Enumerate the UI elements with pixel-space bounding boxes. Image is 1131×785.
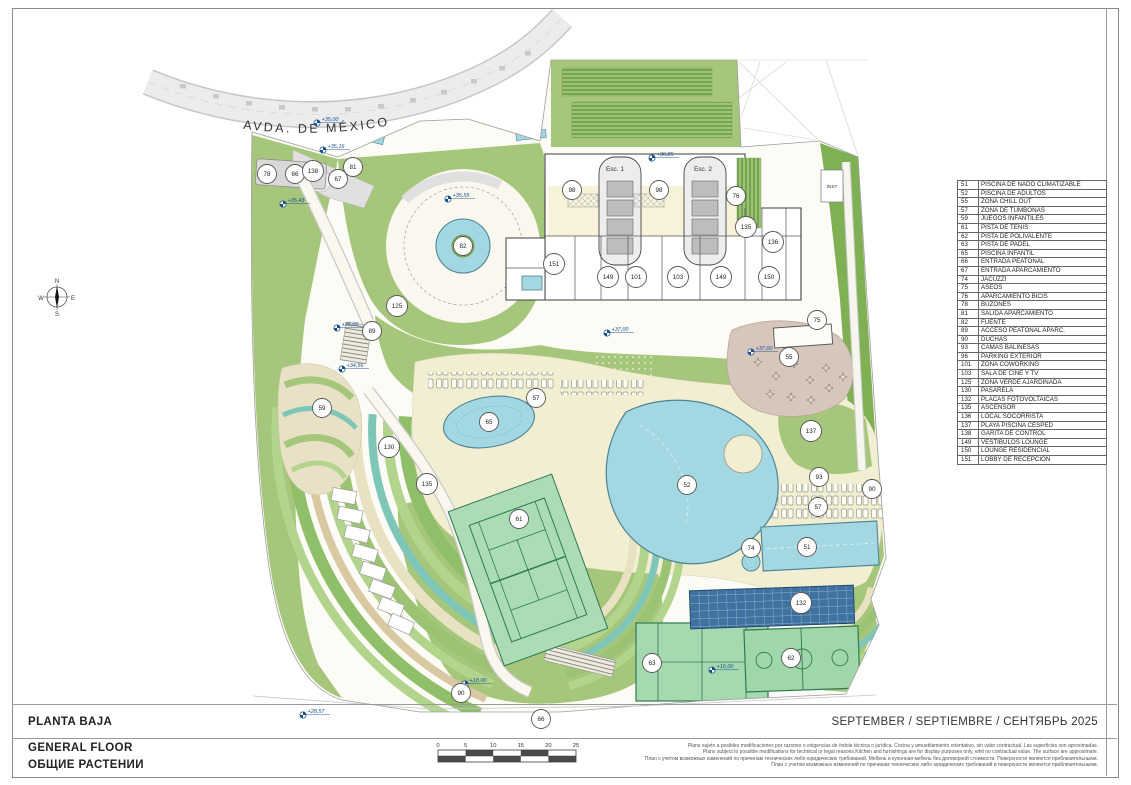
scale-block xyxy=(493,756,521,762)
chair-icon xyxy=(809,383,811,385)
plan-marker-number: 125 xyxy=(392,303,403,310)
chair-icon xyxy=(757,358,759,360)
legend-label: DUCHAS xyxy=(979,335,1107,344)
legend-row: 103SALA DE CINE Y TV xyxy=(958,370,1107,379)
table-icon xyxy=(768,392,772,396)
legend-row: 59JUEGOS INFANTILES xyxy=(958,215,1107,224)
scale-block xyxy=(438,756,466,762)
elevation-value: +16,00 xyxy=(717,664,735,670)
legend: 51PISCINA DE NADO CLIMATIZABLE52PISCINA … xyxy=(957,180,1107,465)
legend-row: 150LOUNGE RESIDENCIAL xyxy=(958,447,1107,456)
chair-icon xyxy=(809,376,811,378)
legend-row: 67ENTRADA APARCAMIENTO xyxy=(958,266,1107,275)
multipurpose-court xyxy=(744,626,860,692)
elevation-icon xyxy=(320,147,326,153)
plan-marker-number: 66 xyxy=(291,171,299,178)
chair-icon xyxy=(797,363,799,365)
plan-label: INST xyxy=(827,184,838,190)
legend-label: PISTA DE TENIS xyxy=(979,223,1107,232)
legend-number: 150 xyxy=(958,447,979,456)
elevation-value: +18,00 xyxy=(470,678,488,684)
chair-icon xyxy=(793,367,795,369)
elevation-value: +35,55 xyxy=(453,193,471,199)
legend-row: 130PASARELA xyxy=(958,387,1107,396)
legend-label: PISCINA INFANTIL xyxy=(979,249,1107,258)
elevation-icon xyxy=(314,120,320,126)
legend-row: 137PLAYA PISCINA CESPED xyxy=(958,421,1107,430)
plan-marker-number: 55 xyxy=(785,354,793,361)
legend-number: 82 xyxy=(958,318,979,327)
chair-icon xyxy=(807,399,809,401)
chair-icon xyxy=(832,387,834,389)
table-icon xyxy=(774,374,778,378)
scale-block xyxy=(548,756,576,762)
plan-marker-number: 98 xyxy=(568,187,576,194)
table-icon xyxy=(789,395,793,399)
legend-row: 151LOBBY DE RECEPCIÓN xyxy=(958,456,1107,465)
legend-label: PISCINA DE ADULTOS xyxy=(979,189,1107,198)
legend-label: BUZONES xyxy=(979,301,1107,310)
lap-pool-51 xyxy=(761,521,879,571)
chair-icon xyxy=(790,400,792,402)
chair-icon xyxy=(814,399,816,401)
chair-icon xyxy=(772,375,774,377)
compass-s: S xyxy=(55,312,59,318)
legend-number: 51 xyxy=(958,181,979,190)
table-icon xyxy=(808,378,812,382)
chair-icon xyxy=(828,384,830,386)
legend-label: ACCESO PEATONAL APARC. xyxy=(979,327,1107,336)
scale-block xyxy=(521,750,549,756)
disclaimer-block: Plano sujeto a posibles modificaciones p… xyxy=(645,743,1098,768)
solar-panels xyxy=(689,585,854,629)
plan-marker-number: 89 xyxy=(368,328,376,335)
legend-row: 125ZONA VERDE AJARDINADA xyxy=(958,378,1107,387)
kerb-mark xyxy=(378,104,384,109)
legend-label: ZONA DE TUMBONAS xyxy=(979,206,1107,215)
legend-number: 78 xyxy=(958,301,979,310)
compass-n: N xyxy=(55,279,59,285)
legend-row: 135ASCENSOR xyxy=(958,404,1107,413)
legend-number: 74 xyxy=(958,275,979,284)
plan-marker-number: 130 xyxy=(384,444,395,451)
pool-island xyxy=(724,435,762,473)
chair-icon xyxy=(839,376,841,378)
scale-tick: 25 xyxy=(573,743,579,749)
legend-label: LOBBY DE RECEPCIÓN xyxy=(979,456,1107,465)
legend-label: GARITA DE CONTROL xyxy=(979,430,1107,439)
plan-marker-number: 132 xyxy=(796,600,807,607)
lobby-water-feature xyxy=(522,276,542,290)
chair-icon xyxy=(810,396,812,398)
legend-number: 137 xyxy=(958,421,979,430)
scale-tick: 20 xyxy=(545,743,551,749)
legend-row: 89ACCESO PEATONAL APARC. xyxy=(958,327,1107,336)
legend-label: ZONA VERDE AJARDINADA xyxy=(979,378,1107,387)
kerb-mark xyxy=(410,98,416,103)
elevation-icon xyxy=(604,330,610,336)
legend-label: LOUNGE RESIDENCIAL xyxy=(979,447,1107,456)
chair-icon xyxy=(790,393,792,395)
legend-number: 151 xyxy=(958,456,979,465)
hedge-rows xyxy=(562,68,712,96)
loungers-row xyxy=(428,372,556,389)
plan-marker-number: 81 xyxy=(349,164,357,171)
chair-icon xyxy=(787,396,789,398)
scale-tick: 5 xyxy=(464,743,467,749)
legend-number: 81 xyxy=(958,309,979,318)
plan-marker-number: 61 xyxy=(515,516,523,523)
elevation-icon xyxy=(445,196,451,202)
kerb-mark xyxy=(180,84,186,89)
legend-number: 65 xyxy=(958,249,979,258)
disclaimer-en: Plans subject to possible modifications … xyxy=(645,749,1098,755)
plan-marker-number: 74 xyxy=(747,545,755,552)
compass-rose: N E S W xyxy=(38,279,75,318)
chair-icon xyxy=(779,375,781,377)
legend-row: 75ASEOS xyxy=(958,284,1107,293)
titleblock-separator-top xyxy=(12,704,1117,705)
elevation-value: +35,00 xyxy=(322,117,340,123)
scale-tick: 10 xyxy=(490,743,496,749)
plan-marker-number: 137 xyxy=(806,428,817,435)
kerb-mark xyxy=(213,94,219,99)
plan-marker-number: 90 xyxy=(868,486,876,493)
legend-label: ZONA COWORKING xyxy=(979,361,1107,370)
legend-row: 149VESTÍBULOS LOUNGE xyxy=(958,438,1107,447)
disclaimer-ru1: План с учетом возможных изменений по при… xyxy=(645,756,1098,762)
plan-label: Esc. 1 xyxy=(606,166,624,173)
legend-label: APARCAMIENTO BICIS xyxy=(979,292,1107,301)
chair-icon xyxy=(775,372,777,374)
legend-label: LOCAL SOCORRISTA xyxy=(979,413,1107,422)
elevation-value: +36,85 xyxy=(657,152,675,158)
kerb-mark xyxy=(525,51,531,56)
elevation-value: +28,57 xyxy=(308,709,326,715)
plan-marker-number: 51 xyxy=(803,544,811,551)
plan-marker-number: 66 xyxy=(537,716,545,723)
chair-icon xyxy=(806,379,808,381)
scale-tick: 0 xyxy=(436,743,439,749)
elevation-icon xyxy=(709,667,715,673)
chair-icon xyxy=(825,371,827,373)
chair-icon xyxy=(822,367,824,369)
legend-number: 125 xyxy=(958,378,979,387)
legend-number: 101 xyxy=(958,361,979,370)
legend-row: 136LOCAL SOCORRISTA xyxy=(958,413,1107,422)
plan-marker-number: 65 xyxy=(485,419,493,426)
kerb-mark xyxy=(345,107,351,112)
plan-marker-number: 52 xyxy=(683,482,691,489)
elevation-icon xyxy=(280,201,286,207)
legend-number: 136 xyxy=(958,413,979,422)
kerb-mark xyxy=(499,66,505,71)
legend-number: 132 xyxy=(958,395,979,404)
legend-row: 90DUCHAS xyxy=(958,335,1107,344)
street-avda-de-mexico: AVDA. DE MÉXICO xyxy=(148,18,562,136)
legend-row: 81SALIDA APARCAMIENTO xyxy=(958,309,1107,318)
legend-label: ASEOS xyxy=(979,284,1107,293)
legend-row: 57ZONA DE TUMBONAS xyxy=(958,206,1107,215)
title-spanish: PLANTA BAJA xyxy=(28,716,112,728)
chair-icon xyxy=(842,373,844,375)
chair-icon xyxy=(828,391,830,393)
legend-row: 96PARKING EXTERIOR xyxy=(958,352,1107,361)
legend-row: 74JACUZZI xyxy=(958,275,1107,284)
legend-table: 51PISCINA DE NADO CLIMATIZABLE52PISCINA … xyxy=(957,180,1107,465)
chair-icon xyxy=(757,365,759,367)
legend-row: 101ZONA COWORKING xyxy=(958,361,1107,370)
neighbour-parcel-lines xyxy=(739,60,868,156)
legend-label: PISTA DE PADEL xyxy=(979,241,1107,250)
elevation-value: +35,16 xyxy=(328,144,346,150)
plan-marker-number: 93 xyxy=(815,474,823,481)
disclaimer-ru2: План с учетом возможных изменений по при… xyxy=(645,762,1098,768)
legend-row: 63PISTA DE PADEL xyxy=(958,241,1107,250)
elevation-icon xyxy=(748,349,754,355)
legend-label: CAMAS BALINESAS xyxy=(979,344,1107,353)
plan-marker-number: 78 xyxy=(263,171,271,178)
legend-row: 61PISTA DE TENIS xyxy=(958,223,1107,232)
legend-label: PISCINA DE NADO CLIMATIZABLE xyxy=(979,181,1107,190)
kerb-mark xyxy=(279,105,285,110)
elevation-icon xyxy=(339,366,345,372)
legend-label: ENTRADA PEATONAL xyxy=(979,258,1107,267)
elevation-value: +37,00 xyxy=(612,327,630,333)
legend-row: 52PISCINA DE ADULTOS xyxy=(958,189,1107,198)
table-icon xyxy=(809,398,813,402)
legend-label: VESTÍBULOS LOUNGE xyxy=(979,438,1107,447)
elevation-icon xyxy=(649,155,655,161)
lobby-annex xyxy=(506,238,545,300)
plan-marker-number: 135 xyxy=(422,481,433,488)
kerb-mark xyxy=(312,107,318,112)
legend-number: 62 xyxy=(958,232,979,241)
legend-row: 132PLACAS FOTOVOLTAICAS xyxy=(958,395,1107,404)
legend-label: PARKING EXTERIOR xyxy=(979,352,1107,361)
legend-row: 55ZONA CHILL OUT xyxy=(958,198,1107,207)
aseos-building xyxy=(773,324,832,348)
legend-label: ENTRADA APARCAMIENTO xyxy=(979,266,1107,275)
chair-icon xyxy=(769,390,771,392)
elevation-icon xyxy=(300,712,306,718)
title-english: GENERAL FLOOR xyxy=(28,742,133,754)
legend-row: 66ENTRADA PEATONAL xyxy=(958,258,1107,267)
title-russian: ОБЩИЕ РАСТЕНИИ xyxy=(28,759,144,771)
legend-label: PASARELA xyxy=(979,387,1107,396)
chair-icon xyxy=(842,380,844,382)
legend-row: 93CAMAS BALINESAS xyxy=(958,344,1107,353)
plan-marker-number: 82 xyxy=(459,243,467,250)
plan-label: Esc. 2 xyxy=(694,166,712,173)
scale-block xyxy=(466,750,494,756)
chair-icon xyxy=(813,379,815,381)
legend-number: 93 xyxy=(958,344,979,353)
kerb-mark xyxy=(471,79,477,84)
legend-number: 67 xyxy=(958,266,979,275)
legend-label: JACUZZI xyxy=(979,275,1107,284)
chair-icon xyxy=(846,376,848,378)
plan-marker-number: 150 xyxy=(764,274,775,281)
hedge-rows xyxy=(572,102,732,138)
chair-icon xyxy=(825,364,827,366)
plan-marker-number: 136 xyxy=(768,239,779,246)
legend-number: 75 xyxy=(958,284,979,293)
legend-row: 82FUENTE xyxy=(958,318,1107,327)
loungers-row xyxy=(560,380,646,395)
legend-label: ASCENSOR xyxy=(979,404,1107,413)
chair-icon xyxy=(794,396,796,398)
plan-marker-number: 76 xyxy=(732,193,740,200)
elevation-value: +37,00 xyxy=(756,346,774,352)
legend-number: 63 xyxy=(958,241,979,250)
elevation-value: +35,00 xyxy=(342,322,360,328)
legend-row: 76APARCAMIENTO BICIS xyxy=(958,292,1107,301)
legend-row: 78BUZONES xyxy=(958,301,1107,310)
drawing-sheet: AVDA. DE MÉXICO xyxy=(0,0,1131,785)
plan-marker-number: 135 xyxy=(741,224,752,231)
plan-marker-number: 75 xyxy=(813,317,821,324)
chair-icon xyxy=(761,361,763,363)
legend-number: 55 xyxy=(958,198,979,207)
scale-bar: 0510152025 xyxy=(434,738,594,772)
legend-number: 52 xyxy=(958,189,979,198)
chair-icon xyxy=(825,387,827,389)
chair-icon xyxy=(810,403,812,405)
compass-e: E xyxy=(71,296,75,302)
plan-marker-number: 90 xyxy=(457,690,465,697)
chair-icon xyxy=(769,397,771,399)
table-icon xyxy=(827,386,831,390)
plan-marker-number: 149 xyxy=(603,274,614,281)
plan-marker-number: 67 xyxy=(334,176,342,183)
elevation-value: +35,43 xyxy=(288,198,306,204)
plan-marker-number: 59 xyxy=(318,405,326,412)
plan-marker-number: 62 xyxy=(787,655,795,662)
playground xyxy=(278,364,362,495)
plan-marker-number: 138 xyxy=(308,168,319,175)
kerb-mark xyxy=(441,90,447,95)
plan-marker-number: 101 xyxy=(631,274,642,281)
plan-marker-number: 63 xyxy=(648,660,656,667)
legend-number: 135 xyxy=(958,404,979,413)
elevation-value: +34,56 xyxy=(347,363,365,369)
legend-number: 130 xyxy=(958,387,979,396)
date-line: SEPTEMBER / SEPTIEMBRE / СЕНТЯБРЬ 2025 xyxy=(831,716,1098,728)
compass-w: W xyxy=(38,296,44,302)
legend-label: ZONA CHILL OUT xyxy=(979,198,1107,207)
chair-icon xyxy=(775,379,777,381)
elevation-icon xyxy=(334,325,340,331)
kerb-mark xyxy=(246,101,252,106)
chair-icon xyxy=(773,393,775,395)
legend-number: 90 xyxy=(958,335,979,344)
plan-marker-number: 151 xyxy=(549,261,560,268)
legend-number: 76 xyxy=(958,292,979,301)
scale-tick: 15 xyxy=(518,743,524,749)
plan-marker-number: 57 xyxy=(814,504,822,511)
plan-marker-number: 57 xyxy=(532,395,540,402)
legend-number: 61 xyxy=(958,223,979,232)
chair-icon xyxy=(829,367,831,369)
legend-label: FUENTE xyxy=(979,318,1107,327)
chair-icon xyxy=(754,361,756,363)
legend-label: PISTA DE POLIVALENTE xyxy=(979,232,1107,241)
legend-number: 59 xyxy=(958,215,979,224)
table-icon xyxy=(841,375,845,379)
table-icon xyxy=(756,360,760,364)
legend-label: SALA DE CINE Y TV xyxy=(979,370,1107,379)
legend-number: 103 xyxy=(958,370,979,379)
legend-row: 51PISCINA DE NADO CLIMATIZABLE xyxy=(958,181,1107,190)
plan-marker-number: 103 xyxy=(673,274,684,281)
legend-number: 149 xyxy=(958,438,979,447)
legend-number: 66 xyxy=(958,258,979,267)
legend-row: 65PISCINA INFANTIL xyxy=(958,249,1107,258)
legend-number: 138 xyxy=(958,430,979,439)
legend-label: SALIDA APARCAMIENTO xyxy=(979,309,1107,318)
legend-row: 62PISTA DE POLIVALENTE xyxy=(958,232,1107,241)
plan-marker-number: 98 xyxy=(655,187,663,194)
legend-label: PLAYA PISCINA CESPED xyxy=(979,421,1107,430)
legend-row: 138GARITA DE CONTROL xyxy=(958,430,1107,439)
legend-label: PLACAS FOTOVOLTAICAS xyxy=(979,395,1107,404)
table-icon xyxy=(824,366,828,370)
plan-marker-number: 149 xyxy=(716,274,727,281)
legend-number: 57 xyxy=(958,206,979,215)
legend-number: 89 xyxy=(958,327,979,336)
chair-icon xyxy=(766,393,768,395)
legend-number: 96 xyxy=(958,352,979,361)
legend-label: JUEGOS INFANTILES xyxy=(979,215,1107,224)
